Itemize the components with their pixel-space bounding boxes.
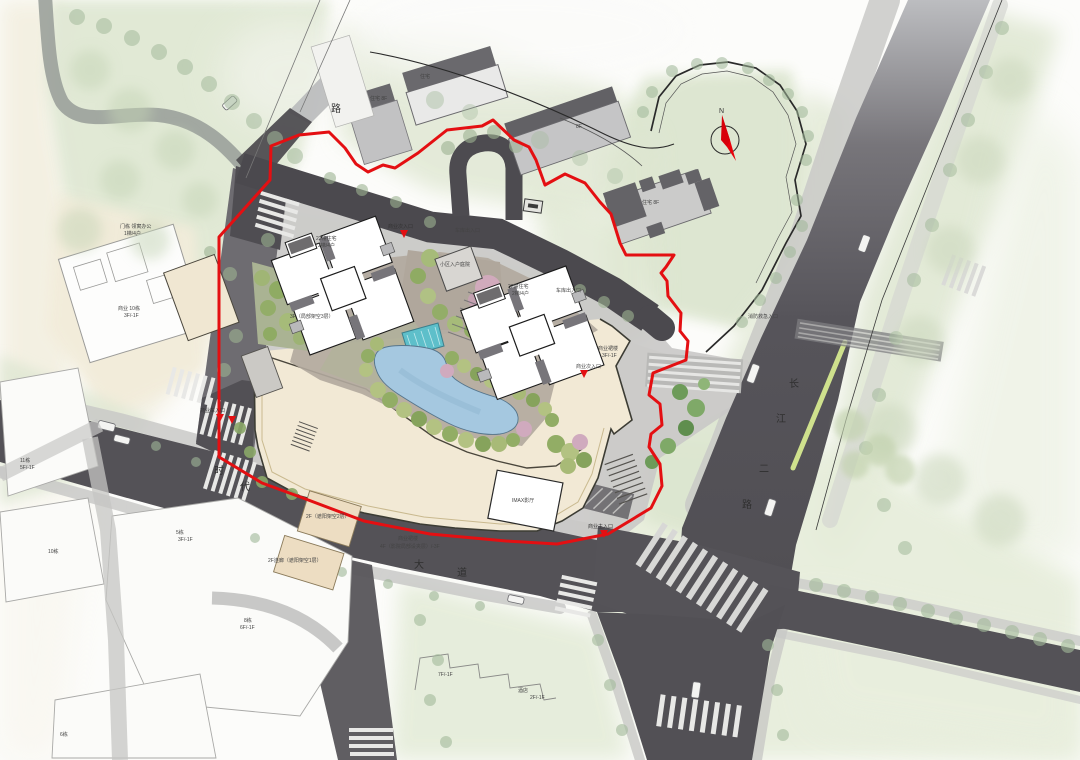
svg-text:住宅: 住宅 xyxy=(420,73,430,80)
svg-text:道: 道 xyxy=(457,566,467,579)
svg-text:3F/-1F: 3F/-1F xyxy=(602,353,617,359)
svg-text:2梯/4户: 2梯/4户 xyxy=(318,242,335,249)
svg-text:二: 二 xyxy=(759,464,769,475)
svg-text:代: 代 xyxy=(240,481,250,493)
svg-text:住宅 8F: 住宅 8F xyxy=(642,199,659,206)
svg-text:7F/-1F: 7F/-1F xyxy=(438,672,453,678)
svg-text:长: 长 xyxy=(789,378,799,390)
svg-text:车库出入口: 车库出入口 xyxy=(556,287,581,294)
svg-text:11栋: 11栋 xyxy=(20,457,30,464)
svg-text:6栋: 6栋 xyxy=(60,731,68,738)
svg-text:商业次入口: 商业次入口 xyxy=(576,363,601,370)
svg-text:车库出入口: 车库出入口 xyxy=(455,227,480,234)
svg-text:商业次入口: 商业次入口 xyxy=(388,223,413,230)
svg-text:酒店: 酒店 xyxy=(518,687,528,694)
svg-text:时: 时 xyxy=(214,465,224,477)
svg-text:2F连廊（遮阳架空1层）: 2F连廊（遮阳架空1层） xyxy=(268,557,322,564)
svg-text:3F/-1F: 3F/-1F xyxy=(178,537,193,543)
svg-text:商业裙楼: 商业裙楼 xyxy=(598,345,618,352)
svg-text:商业车入口: 商业车入口 xyxy=(200,407,225,414)
svg-text:门栋 领寓办公: 门栋 领寓办公 xyxy=(120,223,151,230)
svg-text:22幢住宅: 22幢住宅 xyxy=(316,235,337,242)
svg-text:商业主入口: 商业主入口 xyxy=(588,523,613,530)
svg-text:商业 10栋: 商业 10栋 xyxy=(118,305,140,312)
svg-text:N: N xyxy=(719,108,724,115)
svg-text:路: 路 xyxy=(742,498,752,511)
svg-text:路: 路 xyxy=(331,102,341,115)
svg-text:IMAX影厅: IMAX影厅 xyxy=(512,497,534,504)
svg-text:1梯/4户: 1梯/4户 xyxy=(124,230,141,237)
svg-text:3F（局部架空3层）: 3F（局部架空3层） xyxy=(290,313,334,320)
svg-text:6F/-1F: 6F/-1F xyxy=(240,625,255,631)
svg-text:3F/-1F: 3F/-1F xyxy=(124,313,139,319)
svg-text:22幢住宅: 22幢住宅 xyxy=(508,283,529,290)
svg-text:5栋: 5栋 xyxy=(176,529,184,536)
svg-text:商业裙楼: 商业裙楼 xyxy=(398,535,418,542)
svg-text:5F/-1F: 5F/-1F xyxy=(20,465,35,471)
svg-text:10栋: 10栋 xyxy=(48,548,59,555)
svg-text:8栋: 8栋 xyxy=(244,617,252,624)
svg-text:消防救急入口: 消防救急入口 xyxy=(748,313,778,320)
svg-text:2F/-1F: 2F/-1F xyxy=(530,695,545,701)
svg-text:大: 大 xyxy=(414,558,424,571)
svg-text:小区入户庭院: 小区入户庭院 xyxy=(440,261,470,268)
svg-text:住宅 8F: 住宅 8F xyxy=(370,95,387,102)
svg-text:8F: 8F xyxy=(576,124,582,130)
svg-text:江: 江 xyxy=(776,413,786,425)
svg-text:2F（遮阳架空2层）: 2F（遮阳架空2层） xyxy=(306,513,350,520)
svg-text:2梯/4户: 2梯/4户 xyxy=(512,290,529,297)
svg-text:4F（影院局部设夹层）/-3F: 4F（影院局部设夹层）/-3F xyxy=(380,543,440,550)
